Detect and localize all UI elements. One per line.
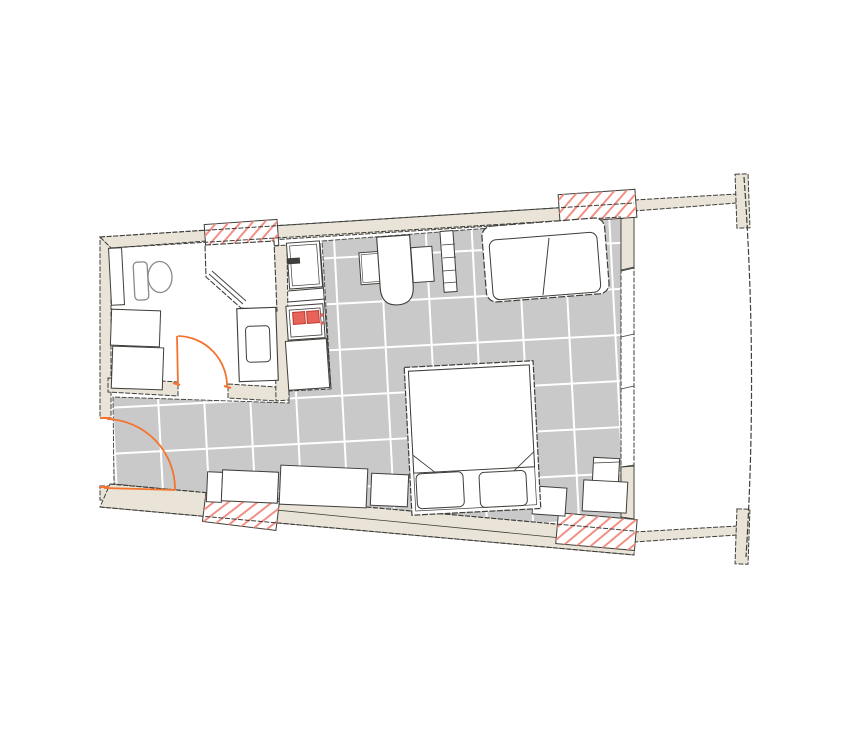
bathroom-shelf — [109, 248, 125, 306]
stove-knob-bottom — [320, 321, 323, 324]
balcony-cap-top — [735, 174, 750, 228]
pillow-right — [479, 470, 528, 507]
bathroom-door-leaf — [177, 336, 178, 386]
wall-right-segment-top — [621, 215, 634, 271]
stove-knob-top — [320, 313, 323, 316]
kitchen-handle — [287, 258, 300, 265]
balcony-wall-bottom — [634, 526, 737, 542]
stove-burner-left — [293, 312, 306, 325]
chair-right — [411, 246, 434, 282]
bathroom-cabinet — [111, 346, 163, 390]
washing-machine — [110, 309, 160, 347]
shower — [205, 241, 277, 311]
nightstand-top — [592, 457, 619, 483]
sideboard-4 — [370, 473, 408, 507]
balcony-railing — [744, 177, 752, 557]
kitchen-counter-line-2 — [288, 299, 325, 302]
toilet-tank — [133, 262, 149, 301]
floor-plan-page — [0, 0, 842, 750]
pillow-left — [416, 472, 465, 509]
table — [377, 235, 415, 306]
bathroom-door-swing — [178, 336, 227, 387]
bed-duvet — [408, 365, 534, 473]
plan-elements-layer — [99, 174, 752, 564]
wall-bathroom-bottom-right — [228, 384, 277, 401]
sideboard-3 — [279, 465, 368, 508]
sofa — [481, 217, 610, 302]
window-marker-top-right-hatch — [558, 189, 637, 222]
sideboard-1 — [206, 472, 222, 503]
sideboard-2 — [221, 470, 278, 503]
nightstand-base — [582, 480, 628, 513]
balcony-wall-top — [634, 194, 737, 211]
kitchen-lower-counter — [285, 339, 329, 391]
stove-burner-right — [307, 311, 320, 324]
toilet-bowl — [147, 261, 173, 293]
vanity-counter — [237, 307, 279, 381]
floor-plan-drawing — [0, 0, 842, 750]
